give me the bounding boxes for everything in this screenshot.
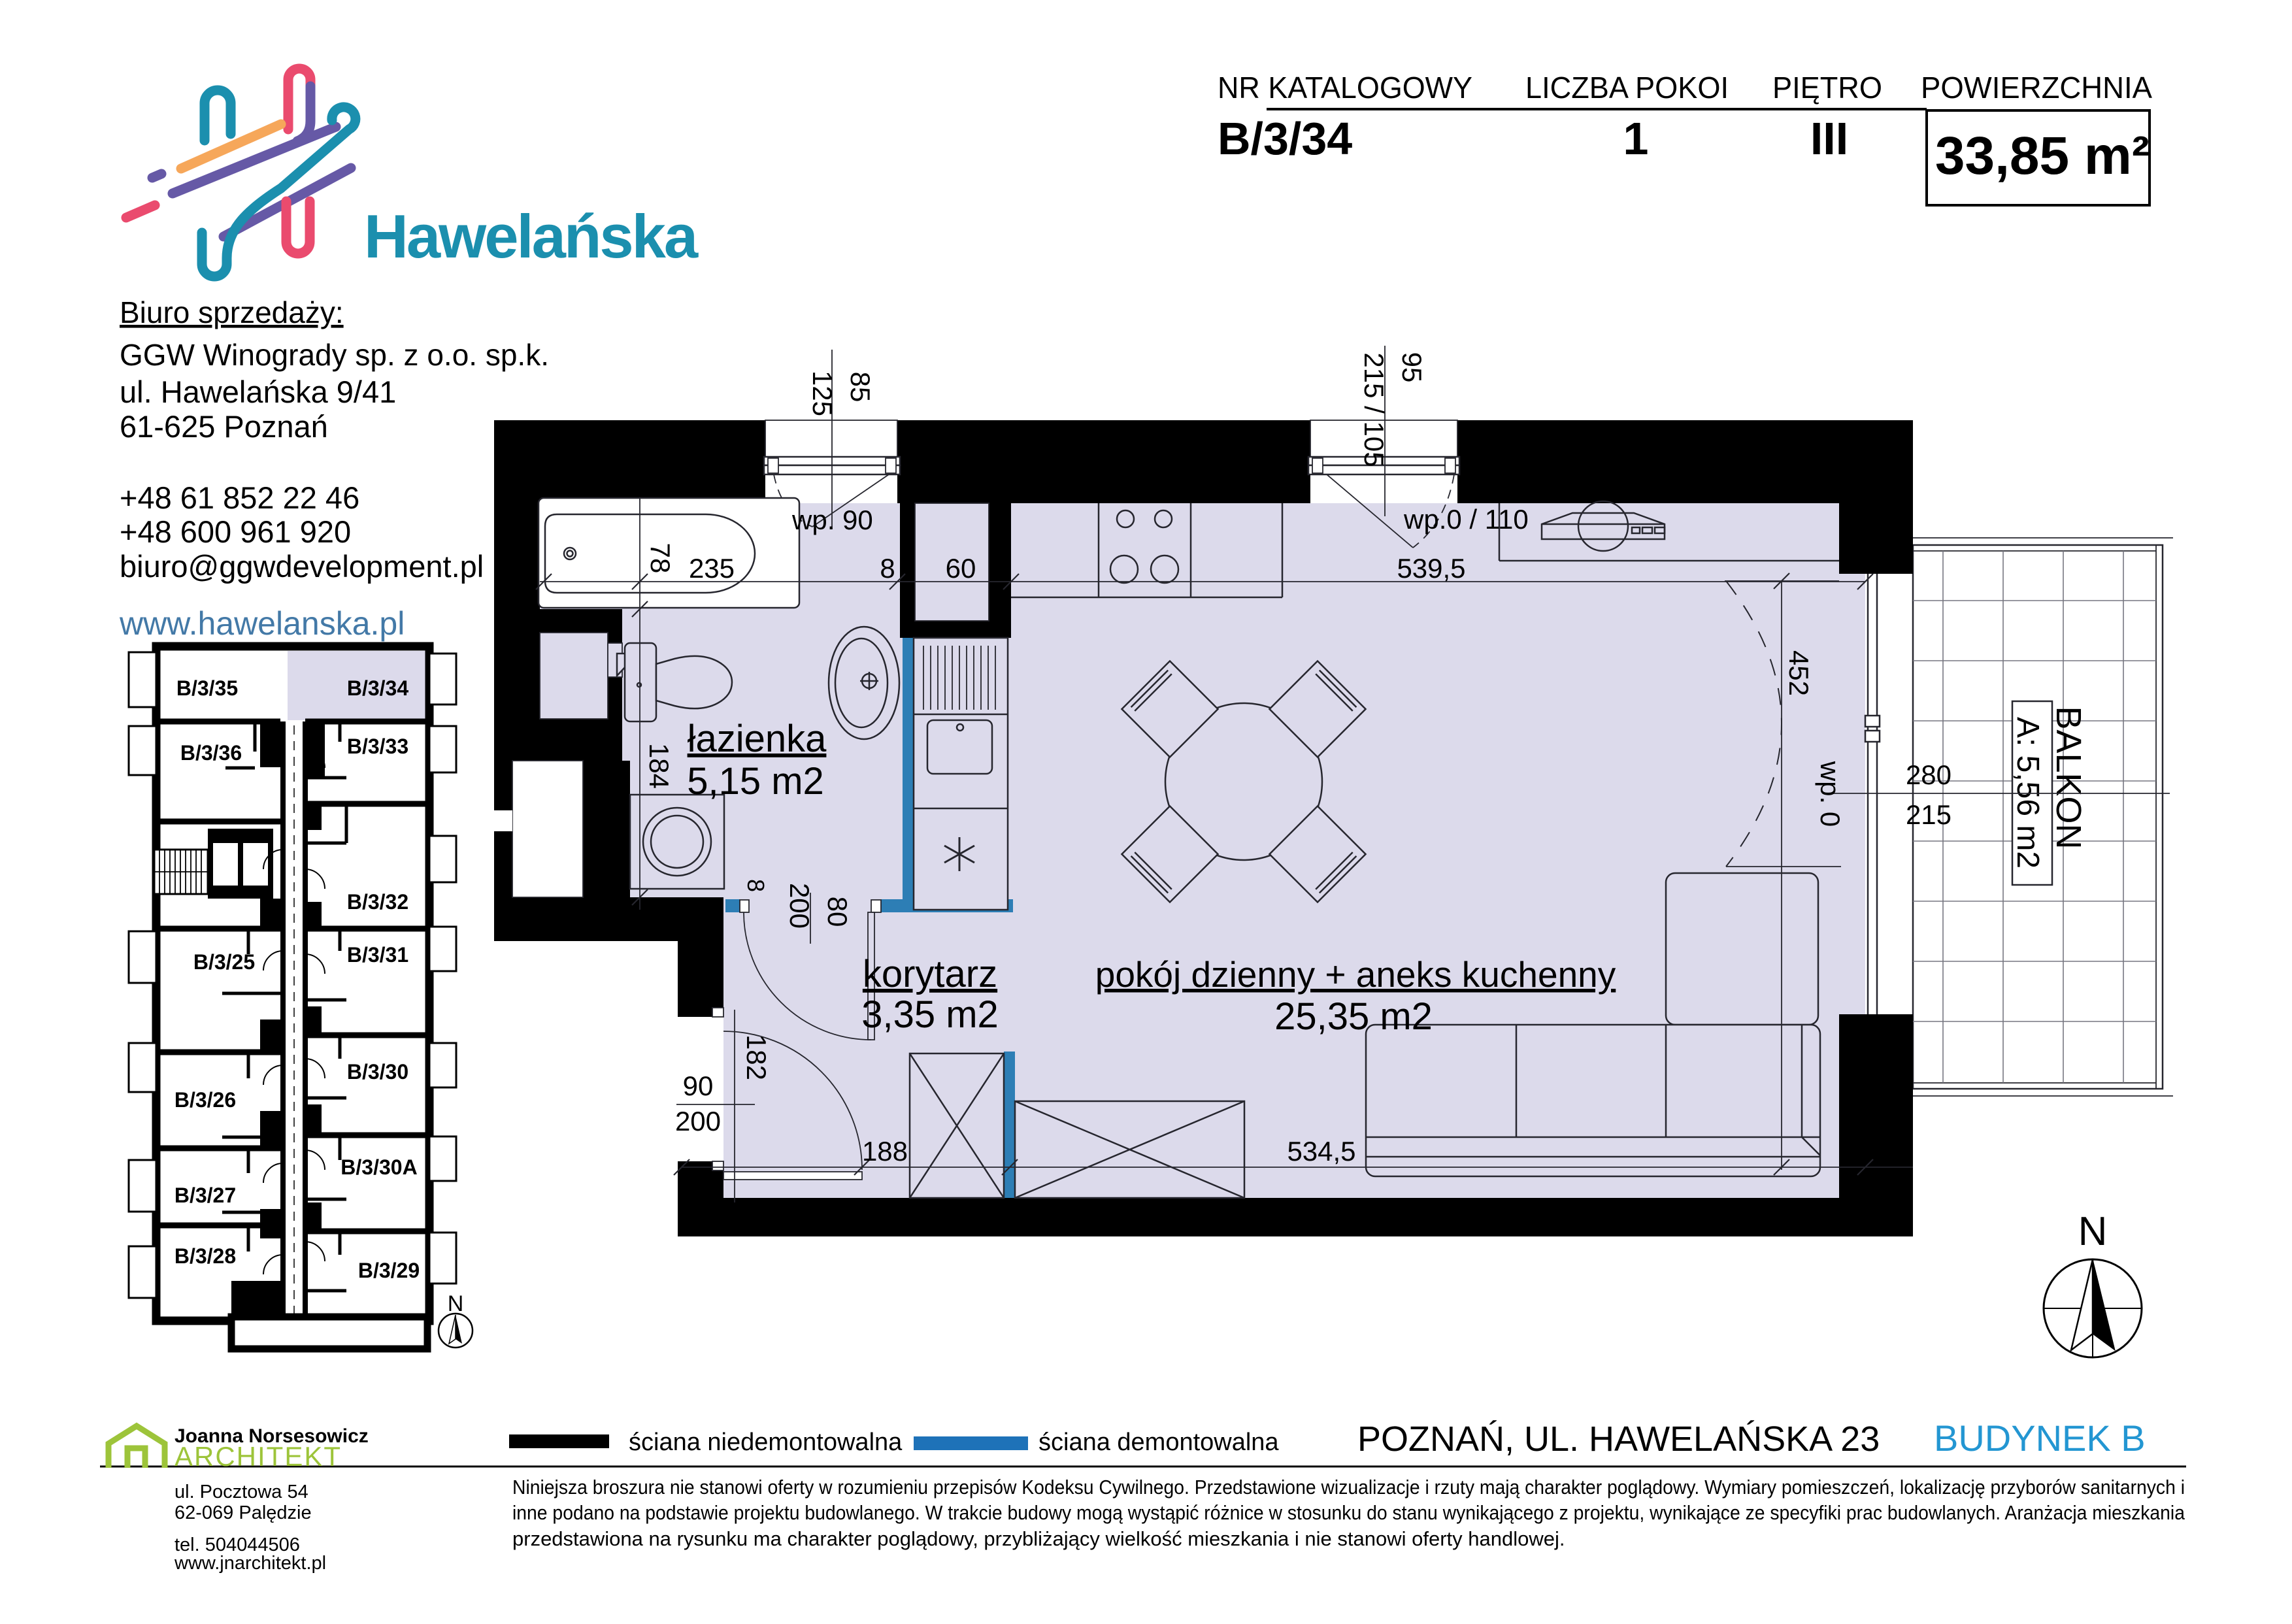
svg-text:280: 280 — [1906, 759, 1952, 790]
svg-text:A: 5,56 m2: A: 5,56 m2 — [2010, 717, 2045, 869]
svg-text:200: 200 — [675, 1106, 721, 1136]
svg-text:B/3/34: B/3/34 — [1218, 113, 1352, 164]
svg-text:ściana demontowalna: ściana demontowalna — [1038, 1429, 1279, 1456]
svg-text:534,5: 534,5 — [1287, 1136, 1355, 1167]
svg-text:www.hawelanska.pl: www.hawelanska.pl — [119, 605, 405, 642]
svg-text:GGW Winogrady sp. z o.o. sp.k.: GGW Winogrady sp. z o.o. sp.k. — [120, 338, 549, 372]
svg-text:B/3/31: B/3/31 — [347, 943, 408, 967]
svg-text:B/3/35: B/3/35 — [176, 676, 238, 700]
svg-text:61-625 Poznań: 61-625 Poznań — [120, 409, 328, 444]
svg-text:B/3/30A: B/3/30A — [340, 1155, 417, 1179]
svg-text:8: 8 — [880, 553, 895, 584]
svg-text:BALKON: BALKON — [2049, 706, 2088, 849]
svg-text:125: 125 — [807, 371, 838, 416]
svg-text:215 / 105: 215 / 105 — [1359, 352, 1389, 467]
svg-text:korytarz: korytarz — [863, 953, 997, 995]
svg-text:33,85 m²: 33,85 m² — [1935, 126, 2150, 186]
svg-text:60: 60 — [946, 553, 976, 584]
svg-text:POWIERZCHNIA: POWIERZCHNIA — [1921, 71, 2152, 105]
svg-text:3,35 m2: 3,35 m2 — [861, 993, 999, 1036]
svg-text:biuro@ggwdevelopment.pl: biuro@ggwdevelopment.pl — [120, 549, 484, 584]
svg-text:ul. Pocztowa 54: ul. Pocztowa 54 — [174, 1482, 308, 1502]
svg-text:PIĘTRO: PIĘTRO — [1772, 71, 1882, 105]
svg-text:www.jnarchitekt.pl: www.jnarchitekt.pl — [174, 1553, 326, 1574]
svg-text:90: 90 — [683, 1070, 714, 1101]
svg-text:wp. 90: wp. 90 — [791, 505, 873, 535]
svg-text:ARCHITEKT: ARCHITEKT — [174, 1441, 342, 1472]
svg-text:78: 78 — [645, 543, 676, 574]
svg-text:przedstawiona na rysunku ma ch: przedstawiona na rysunku ma charakter po… — [512, 1527, 1565, 1550]
svg-text:BUDYNEK B: BUDYNEK B — [1934, 1417, 2146, 1459]
svg-text:25,35 m2: 25,35 m2 — [1274, 995, 1433, 1038]
svg-text:B/3/36: B/3/36 — [180, 741, 242, 765]
svg-text:85: 85 — [845, 372, 876, 403]
svg-text:łazienka: łazienka — [688, 718, 827, 760]
svg-text:wp. 0: wp. 0 — [1815, 761, 1846, 827]
svg-text:215: 215 — [1906, 799, 1952, 830]
svg-text:62-069 Palędzie: 62-069 Palędzie — [174, 1502, 312, 1523]
svg-text:LICZBA POKOI: LICZBA POKOI — [1525, 71, 1729, 105]
svg-text:B/3/32: B/3/32 — [347, 890, 408, 914]
svg-text:Biuro sprzedaży:: Biuro sprzedaży: — [120, 295, 344, 329]
svg-text:182: 182 — [741, 1035, 772, 1080]
svg-text:B/3/29: B/3/29 — [358, 1259, 420, 1282]
svg-text:B/3/25: B/3/25 — [193, 950, 255, 974]
svg-text:452: 452 — [1784, 650, 1814, 696]
svg-text:B/3/26: B/3/26 — [174, 1088, 236, 1112]
svg-text:N: N — [2078, 1209, 2108, 1254]
svg-text:Hawelańska: Hawelańska — [364, 202, 699, 271]
svg-text:5,15 m2: 5,15 m2 — [687, 760, 824, 803]
svg-text:III: III — [1810, 113, 1848, 164]
svg-text:80: 80 — [822, 897, 853, 927]
svg-text:inne podano na podstawie proje: inne podano na podstawie projektu budowl… — [512, 1501, 2185, 1524]
svg-text:B/3/33: B/3/33 — [347, 735, 408, 758]
svg-text:188: 188 — [862, 1136, 908, 1167]
svg-text:539,5: 539,5 — [1397, 553, 1465, 584]
svg-text:B/3/27: B/3/27 — [174, 1184, 236, 1207]
svg-text:184: 184 — [644, 743, 674, 789]
svg-text:95: 95 — [1397, 352, 1427, 383]
svg-text:B/3/28: B/3/28 — [174, 1244, 236, 1268]
svg-text:POZNAŃ, UL. HAWELAŃSKA 23: POZNAŃ, UL. HAWELAŃSKA 23 — [1357, 1419, 1880, 1459]
svg-text:B/3/34: B/3/34 — [347, 676, 408, 700]
svg-text:+48 600 961 920: +48 600 961 920 — [120, 514, 351, 549]
svg-text:1: 1 — [1623, 113, 1649, 164]
svg-text:ściana niedemontowalna: ściana niedemontowalna — [629, 1429, 903, 1456]
svg-text:8: 8 — [742, 879, 769, 892]
svg-text:N: N — [448, 1291, 464, 1316]
svg-text:235: 235 — [689, 553, 735, 584]
svg-text:ul. Hawelańska 9/41: ul. Hawelańska 9/41 — [120, 374, 396, 409]
svg-text:B/3/30: B/3/30 — [347, 1060, 408, 1084]
svg-text:pokój dzienny + aneks kuchenny: pokój dzienny + aneks kuchenny — [1095, 954, 1616, 995]
svg-text:wp.0 / 110: wp.0 / 110 — [1403, 504, 1529, 535]
svg-text:NR KATALOGOWY: NR KATALOGOWY — [1218, 71, 1472, 105]
svg-text:+48 61 852 22 46: +48 61 852 22 46 — [120, 480, 359, 515]
svg-text:Niniejsza broszura nie stanowi: Niniejsza broszura nie stanowi oferty w … — [512, 1476, 2185, 1499]
